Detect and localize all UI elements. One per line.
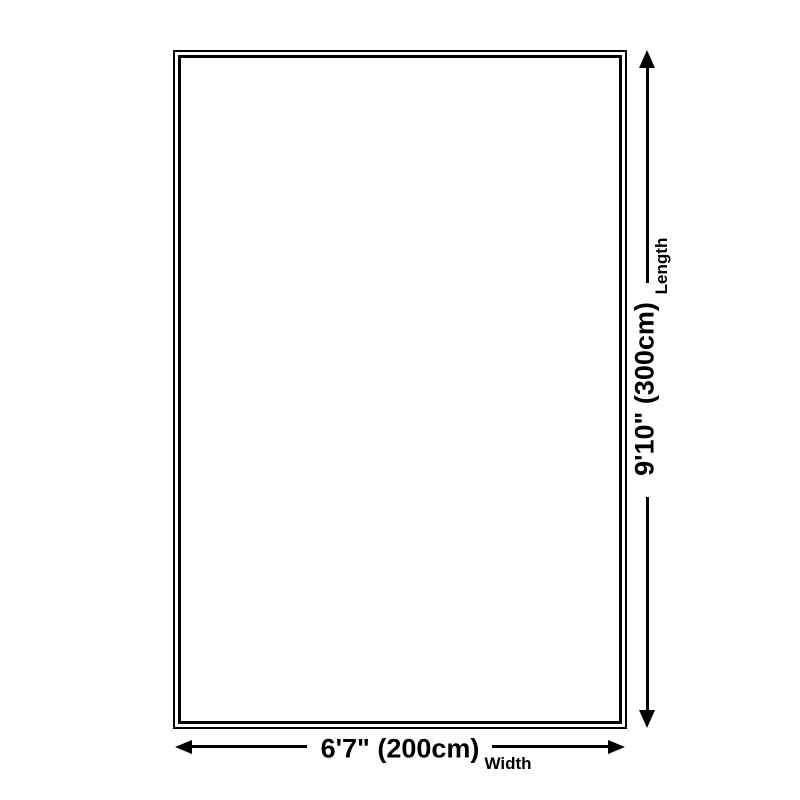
length-value: 9'10" (300cm)	[630, 302, 661, 476]
arrowhead-down-icon	[639, 710, 655, 728]
length-dimension-line-top	[646, 64, 649, 283]
rug-dimension-diagram: Length 9'10" (300cm) 6'7" (200cm) Width	[0, 0, 800, 800]
length-label: Length	[652, 238, 672, 295]
width-dimension-line-right	[492, 745, 609, 748]
width-dimension-line-left	[190, 745, 307, 748]
width-label: Width	[484, 754, 531, 774]
arrowhead-right-icon	[608, 740, 625, 754]
width-value: 6'7" (200cm)	[321, 734, 480, 765]
length-dimension-line-bottom	[646, 497, 649, 712]
rug-outline	[173, 50, 627, 729]
rug-outline-inner	[178, 55, 622, 724]
